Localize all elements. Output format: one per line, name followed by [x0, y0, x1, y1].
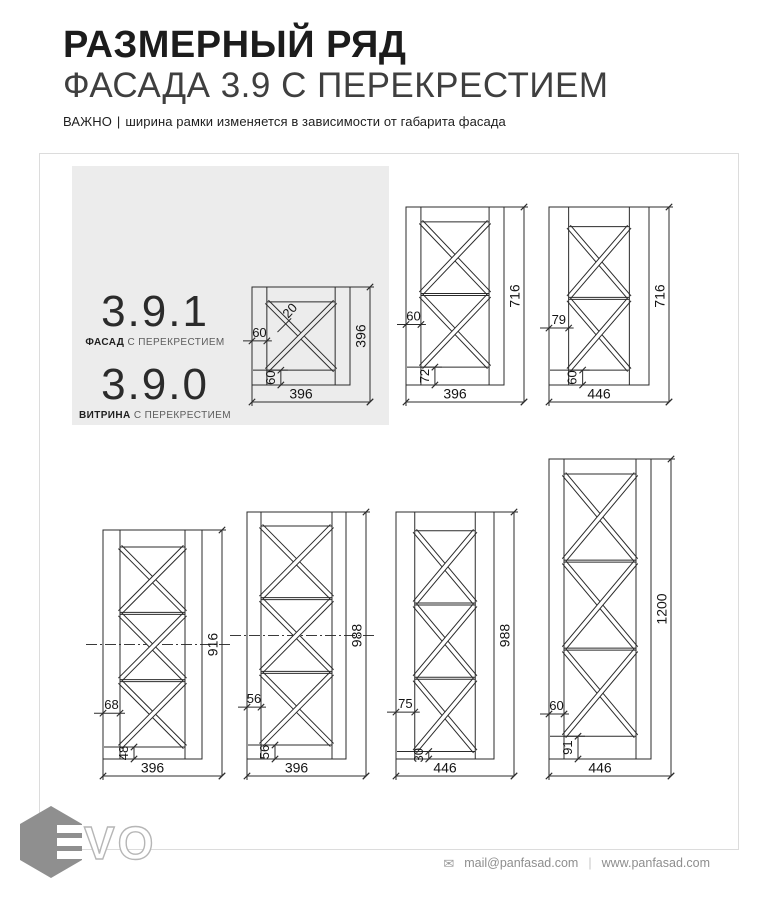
svg-text:91: 91: [560, 740, 575, 754]
envelope-icon: ✉: [443, 857, 454, 870]
legend-type: ФАСАД: [85, 337, 124, 348]
logo-vo-text: VO: [84, 817, 156, 869]
note-text: ширина рамки изменяется в зависимости от…: [125, 114, 505, 129]
svg-text:396: 396: [443, 386, 467, 402]
page-subtitle: ФАСАДА 3.9 С ПЕРЕКРЕСТИЕМ: [63, 66, 743, 105]
svg-text:396: 396: [285, 760, 309, 776]
svg-text:60: 60: [549, 698, 563, 713]
note-prefix: ВАЖНО: [63, 114, 112, 129]
footer-contacts: ✉ mail@panfasad.com | www.panfasad.com: [443, 856, 710, 870]
svg-text:446: 446: [588, 760, 612, 776]
header: РАЗМЕРНЫЙ РЯД ФАСАДА 3.9 С ПЕРЕКРЕСТИЕМ …: [63, 26, 743, 129]
website-link[interactable]: www.panfasad.com: [602, 856, 710, 870]
spec-sheet-page: РАЗМЕРНЫЙ РЯД ФАСАДА 3.9 С ПЕРЕКРЕСТИЕМ …: [0, 0, 784, 900]
svg-text:72: 72: [417, 369, 432, 383]
svg-text:1200: 1200: [654, 593, 670, 624]
svg-text:60: 60: [263, 370, 278, 384]
svg-text:716: 716: [652, 284, 668, 308]
logo-letter-e-icon: [57, 825, 83, 859]
svg-text:60: 60: [406, 308, 420, 323]
svg-text:75: 75: [398, 696, 412, 711]
svg-text:56: 56: [247, 691, 261, 706]
drawing-facade-446x716: 4467167960: [501, 193, 715, 437]
svg-text:68: 68: [104, 697, 118, 712]
svg-text:48: 48: [116, 746, 131, 760]
legend-type: ВИТРИНА: [79, 410, 131, 421]
svg-text:396: 396: [141, 760, 165, 776]
drawing-facade-446x1200: 44612006091: [501, 445, 717, 811]
evo-logo: VO: [14, 804, 194, 896]
svg-text:446: 446: [433, 760, 457, 776]
svg-text:396: 396: [289, 386, 313, 402]
svg-text:30: 30: [411, 748, 426, 762]
contact-separator: |: [588, 856, 591, 870]
important-note: ВАЖНО|ширина рамки изменяется в зависимо…: [63, 114, 743, 129]
svg-text:446: 446: [587, 386, 611, 402]
email-link[interactable]: mail@panfasad.com: [464, 856, 578, 870]
note-separator: |: [117, 114, 120, 129]
svg-text:60: 60: [565, 370, 580, 384]
svg-text:79: 79: [552, 312, 566, 327]
svg-text:56: 56: [257, 745, 272, 759]
svg-text:60: 60: [252, 325, 266, 340]
page-title: РАЗМЕРНЫЙ РЯД: [63, 26, 743, 66]
